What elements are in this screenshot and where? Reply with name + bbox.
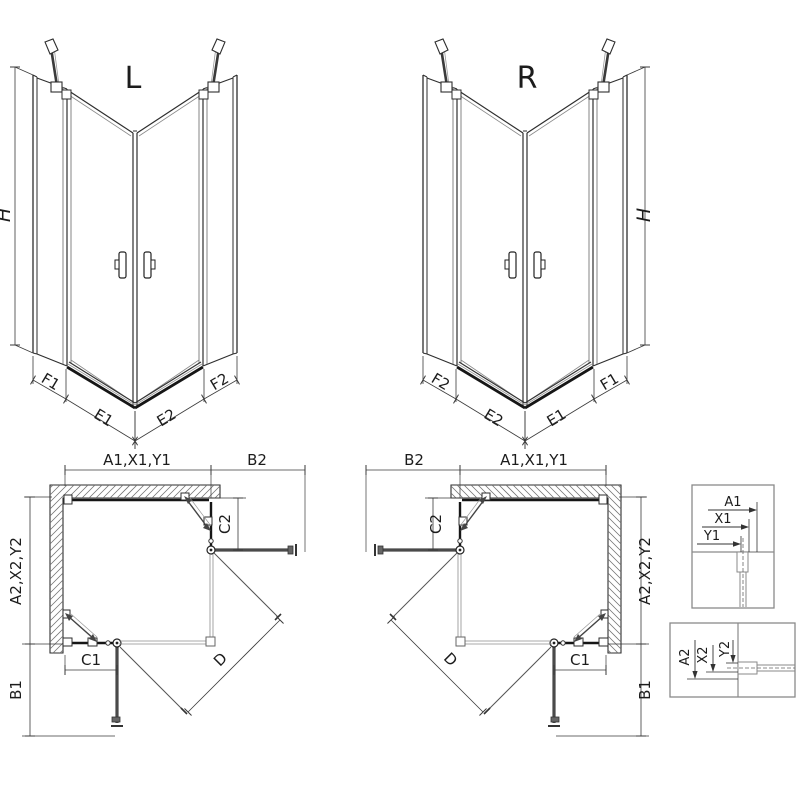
iso-right-height-dim-label: H — [633, 208, 655, 222]
iso-left-seg-f2-label: F2 — [207, 369, 232, 394]
iso-left-height-dim-label: H — [0, 208, 15, 222]
diagram-canvas: L H F1 E1 E2 F2 R H F2 E2 E1 F1 A1,X1,Y1… — [0, 0, 800, 800]
iso-right-seg-e1-label: E1 — [544, 405, 570, 430]
detail-top-y1-label: Y1 — [703, 529, 720, 544]
plan-right-c2-dim-label: C2 — [427, 514, 445, 534]
plan-left-depth-dim-label: A2,X2,Y2 — [7, 537, 25, 605]
plan-left-width-dim-label: A1,X1,Y1 — [103, 451, 171, 469]
plan-left-entry-dim-label: D — [210, 649, 231, 670]
detail-bottom-a2-label: A2 — [678, 648, 693, 665]
iso-left-title: L — [125, 61, 142, 96]
plan-right-entry-dim-label: D — [440, 649, 461, 670]
iso-right-seg-e2-label: E2 — [481, 405, 507, 430]
plan-view-right — [366, 465, 649, 736]
plan-left-c2-dim-label: C2 — [216, 514, 234, 534]
plan-right-b2-dim-label: B2 — [404, 451, 424, 469]
iso-left-seg-e1-label: E1 — [91, 405, 117, 430]
plan-left-b1-dim-label: B1 — [7, 680, 25, 700]
plan-left-c1-dim-label: C1 — [81, 651, 101, 669]
plan-right-c1-dim-label: C1 — [570, 651, 590, 669]
plan-right-depth-dim-label: A2,X2,Y2 — [636, 537, 654, 605]
detail-bottom-x2-label: X2 — [696, 646, 711, 663]
plan-right-b1-dim-label: B1 — [636, 680, 654, 700]
plan-view-left — [22, 465, 305, 736]
detail-top-x1-label: X1 — [714, 512, 731, 527]
iso-left-seg-e2-label: E2 — [154, 405, 180, 430]
plan-right-width-dim-label: A1,X1,Y1 — [500, 451, 568, 469]
iso-left-seg-f1-label: F1 — [38, 369, 63, 394]
iso-right-seg-f1-label: F1 — [597, 369, 622, 394]
shower-enclosure-technical-drawing: L H F1 E1 E2 F2 R H F2 E2 E1 F1 A1,X1,Y1… — [0, 0, 800, 800]
iso-right-seg-f2-label: F2 — [428, 369, 453, 394]
detail-top-a1-label: A1 — [724, 495, 741, 510]
plan-left-b2-dim-label: B2 — [247, 451, 267, 469]
iso-right-title: R — [517, 61, 538, 96]
detail-bottom-y2-label: Y2 — [718, 641, 733, 658]
